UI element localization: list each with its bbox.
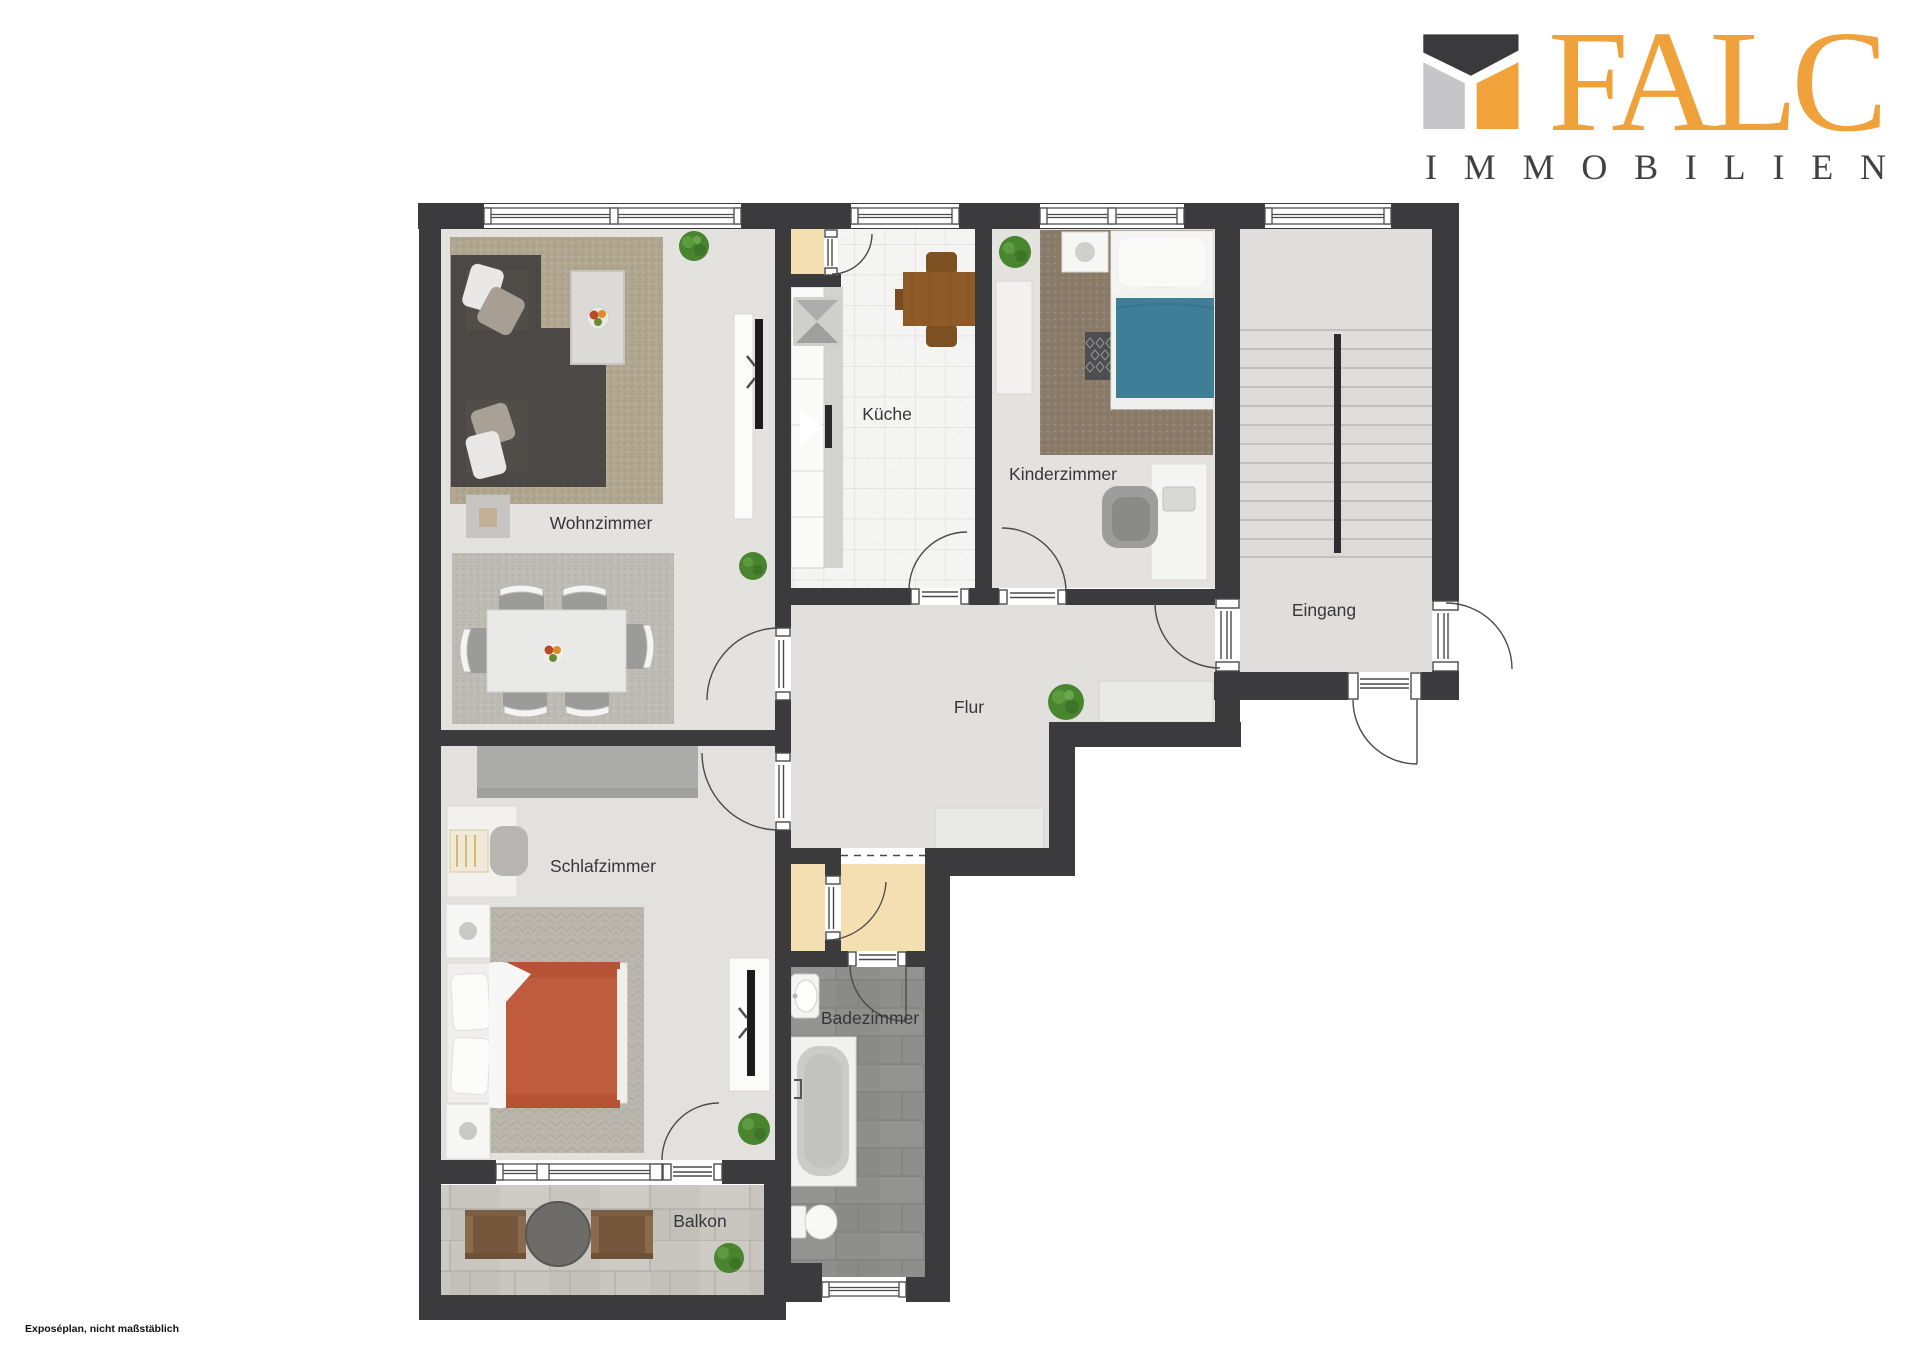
- svg-text:Wohnzimmer: Wohnzimmer: [550, 513, 653, 533]
- svg-text:Exposéplan, nicht maßstäblich: Exposéplan, nicht maßstäblich: [25, 1323, 179, 1335]
- svg-text:Küche: Küche: [862, 404, 912, 424]
- svg-text:Kinderzimmer: Kinderzimmer: [1009, 464, 1117, 484]
- svg-text:IMMOBILIEN: IMMOBILIEN: [1425, 147, 1896, 187]
- svg-text:Flur: Flur: [954, 697, 984, 717]
- svg-text:Eingang: Eingang: [1292, 600, 1356, 620]
- svg-text:Badezimmer: Badezimmer: [821, 1008, 919, 1028]
- svg-text:FALC: FALC: [1548, 2, 1888, 162]
- svg-text:Schlafzimmer: Schlafzimmer: [550, 856, 656, 876]
- svg-text:Balkon: Balkon: [673, 1211, 727, 1231]
